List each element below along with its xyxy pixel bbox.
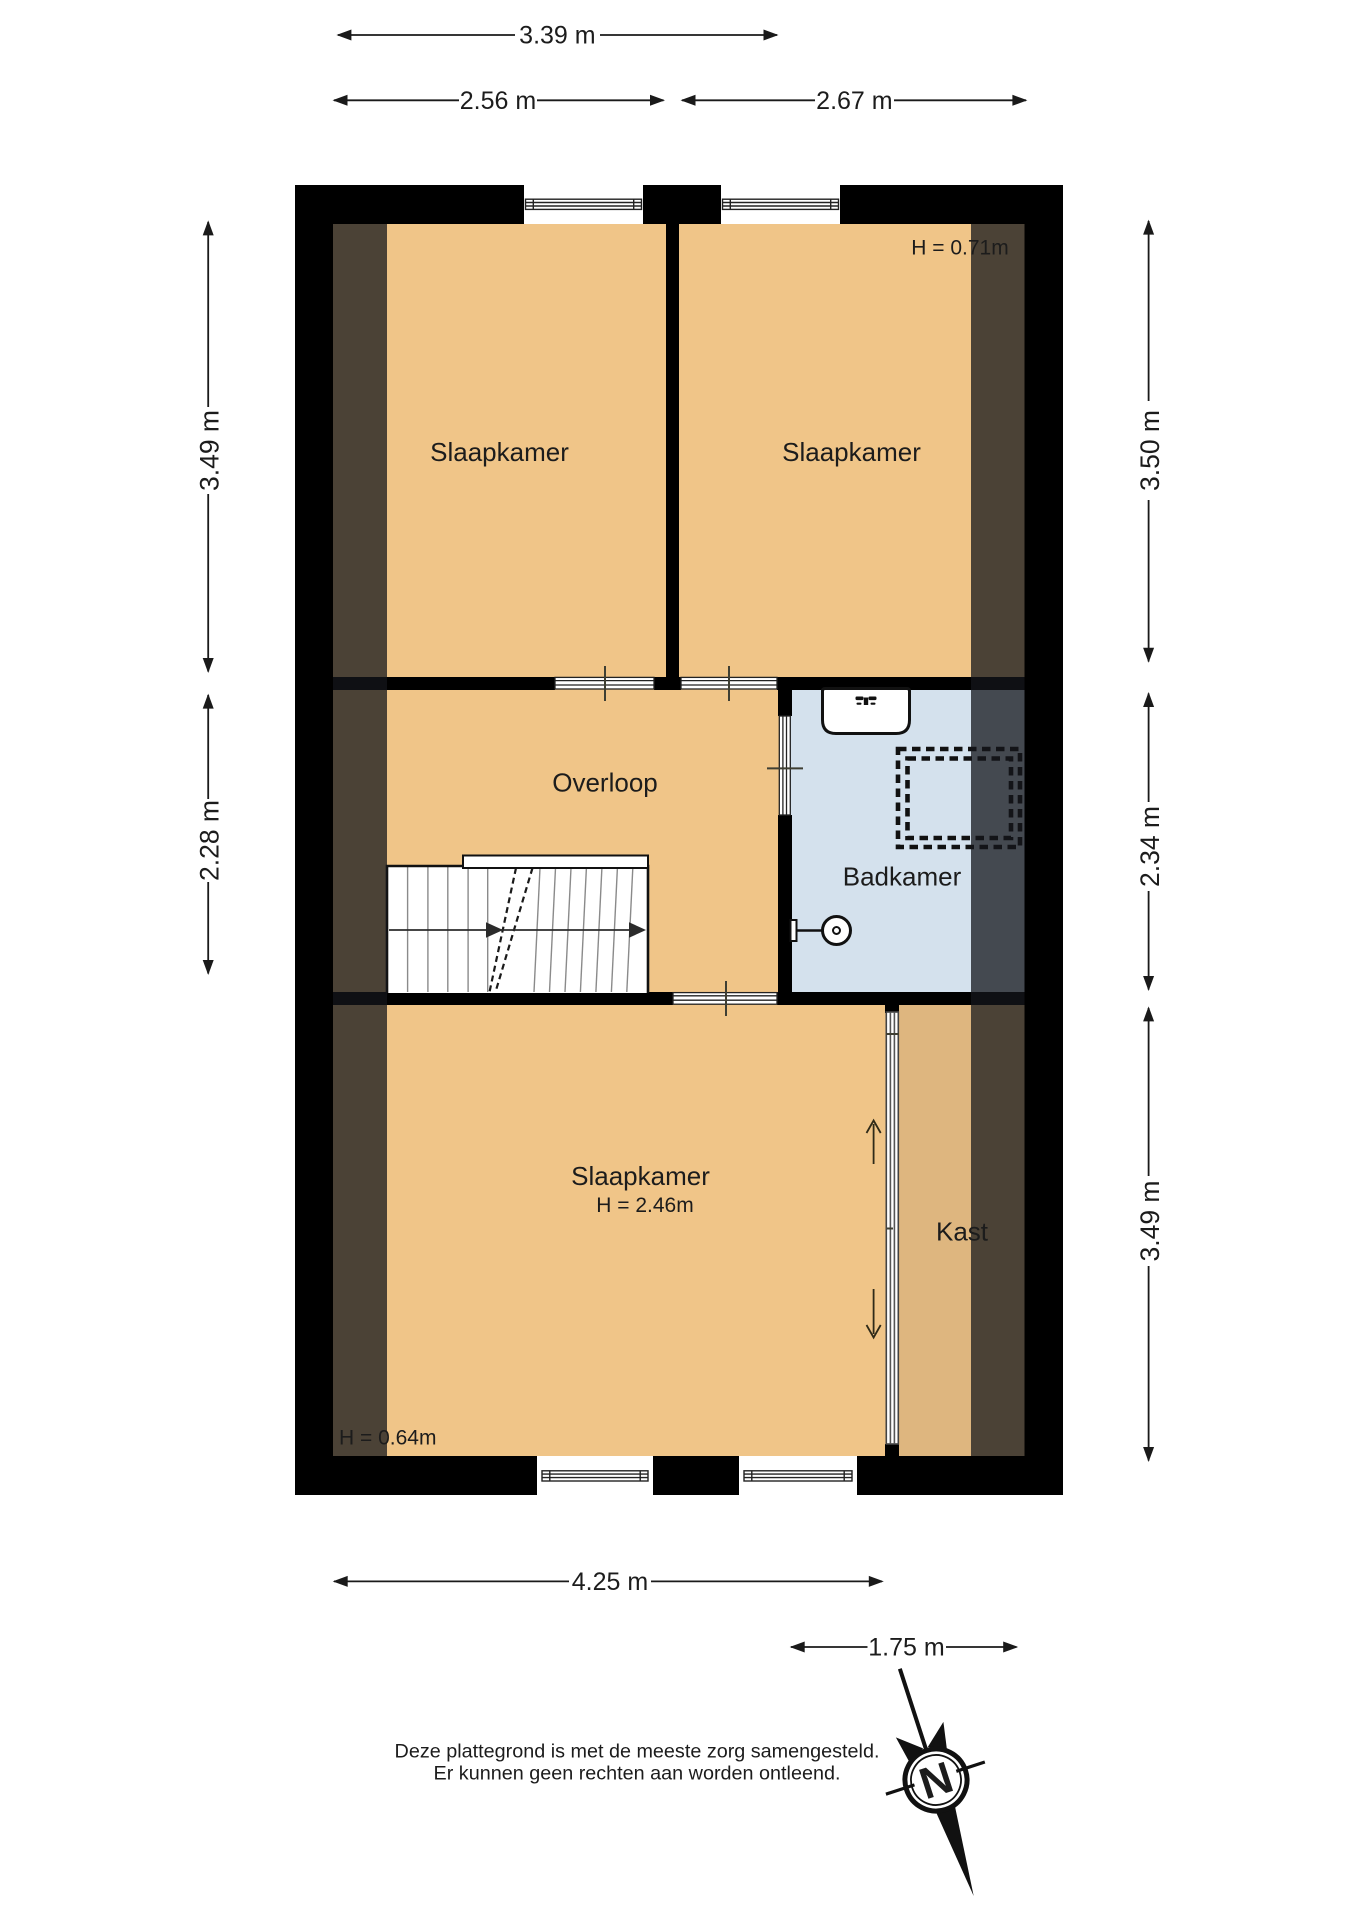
svg-text:1.75 m: 1.75 m <box>868 1634 944 1662</box>
svg-text:Slaapkamer: Slaapkamer <box>430 437 569 467</box>
svg-text:2.56 m: 2.56 m <box>460 87 536 115</box>
svg-text:Slaapkamer: Slaapkamer <box>571 1161 710 1191</box>
svg-text:2.28 m: 2.28 m <box>194 800 224 881</box>
svg-text:Slaapkamer: Slaapkamer <box>782 437 921 467</box>
svg-text:3.49 m: 3.49 m <box>194 410 224 491</box>
svg-text:H = 0.71m: H = 0.71m <box>911 237 1008 260</box>
svg-text:Kast: Kast <box>936 1217 989 1247</box>
svg-text:Badkamer: Badkamer <box>843 862 962 892</box>
svg-text:2.34 m: 2.34 m <box>1135 806 1165 887</box>
svg-text:Overloop: Overloop <box>552 768 658 798</box>
svg-text:H = 0.64m: H = 0.64m <box>339 1427 436 1450</box>
svg-text:3.39 m: 3.39 m <box>519 22 595 50</box>
svg-text:2.67 m: 2.67 m <box>816 87 892 115</box>
svg-text:Er kunnen geen rechten aan wor: Er kunnen geen rechten aan worden ontlee… <box>434 1762 841 1784</box>
svg-text:3.49 m: 3.49 m <box>1135 1180 1165 1261</box>
svg-text:Deze plattegrond is met de mee: Deze plattegrond is met de meeste zorg s… <box>395 1741 880 1763</box>
svg-text:4.25 m: 4.25 m <box>572 1568 648 1596</box>
svg-text:H = 2.46m: H = 2.46m <box>596 1194 693 1217</box>
svg-text:3.50 m: 3.50 m <box>1135 410 1165 491</box>
